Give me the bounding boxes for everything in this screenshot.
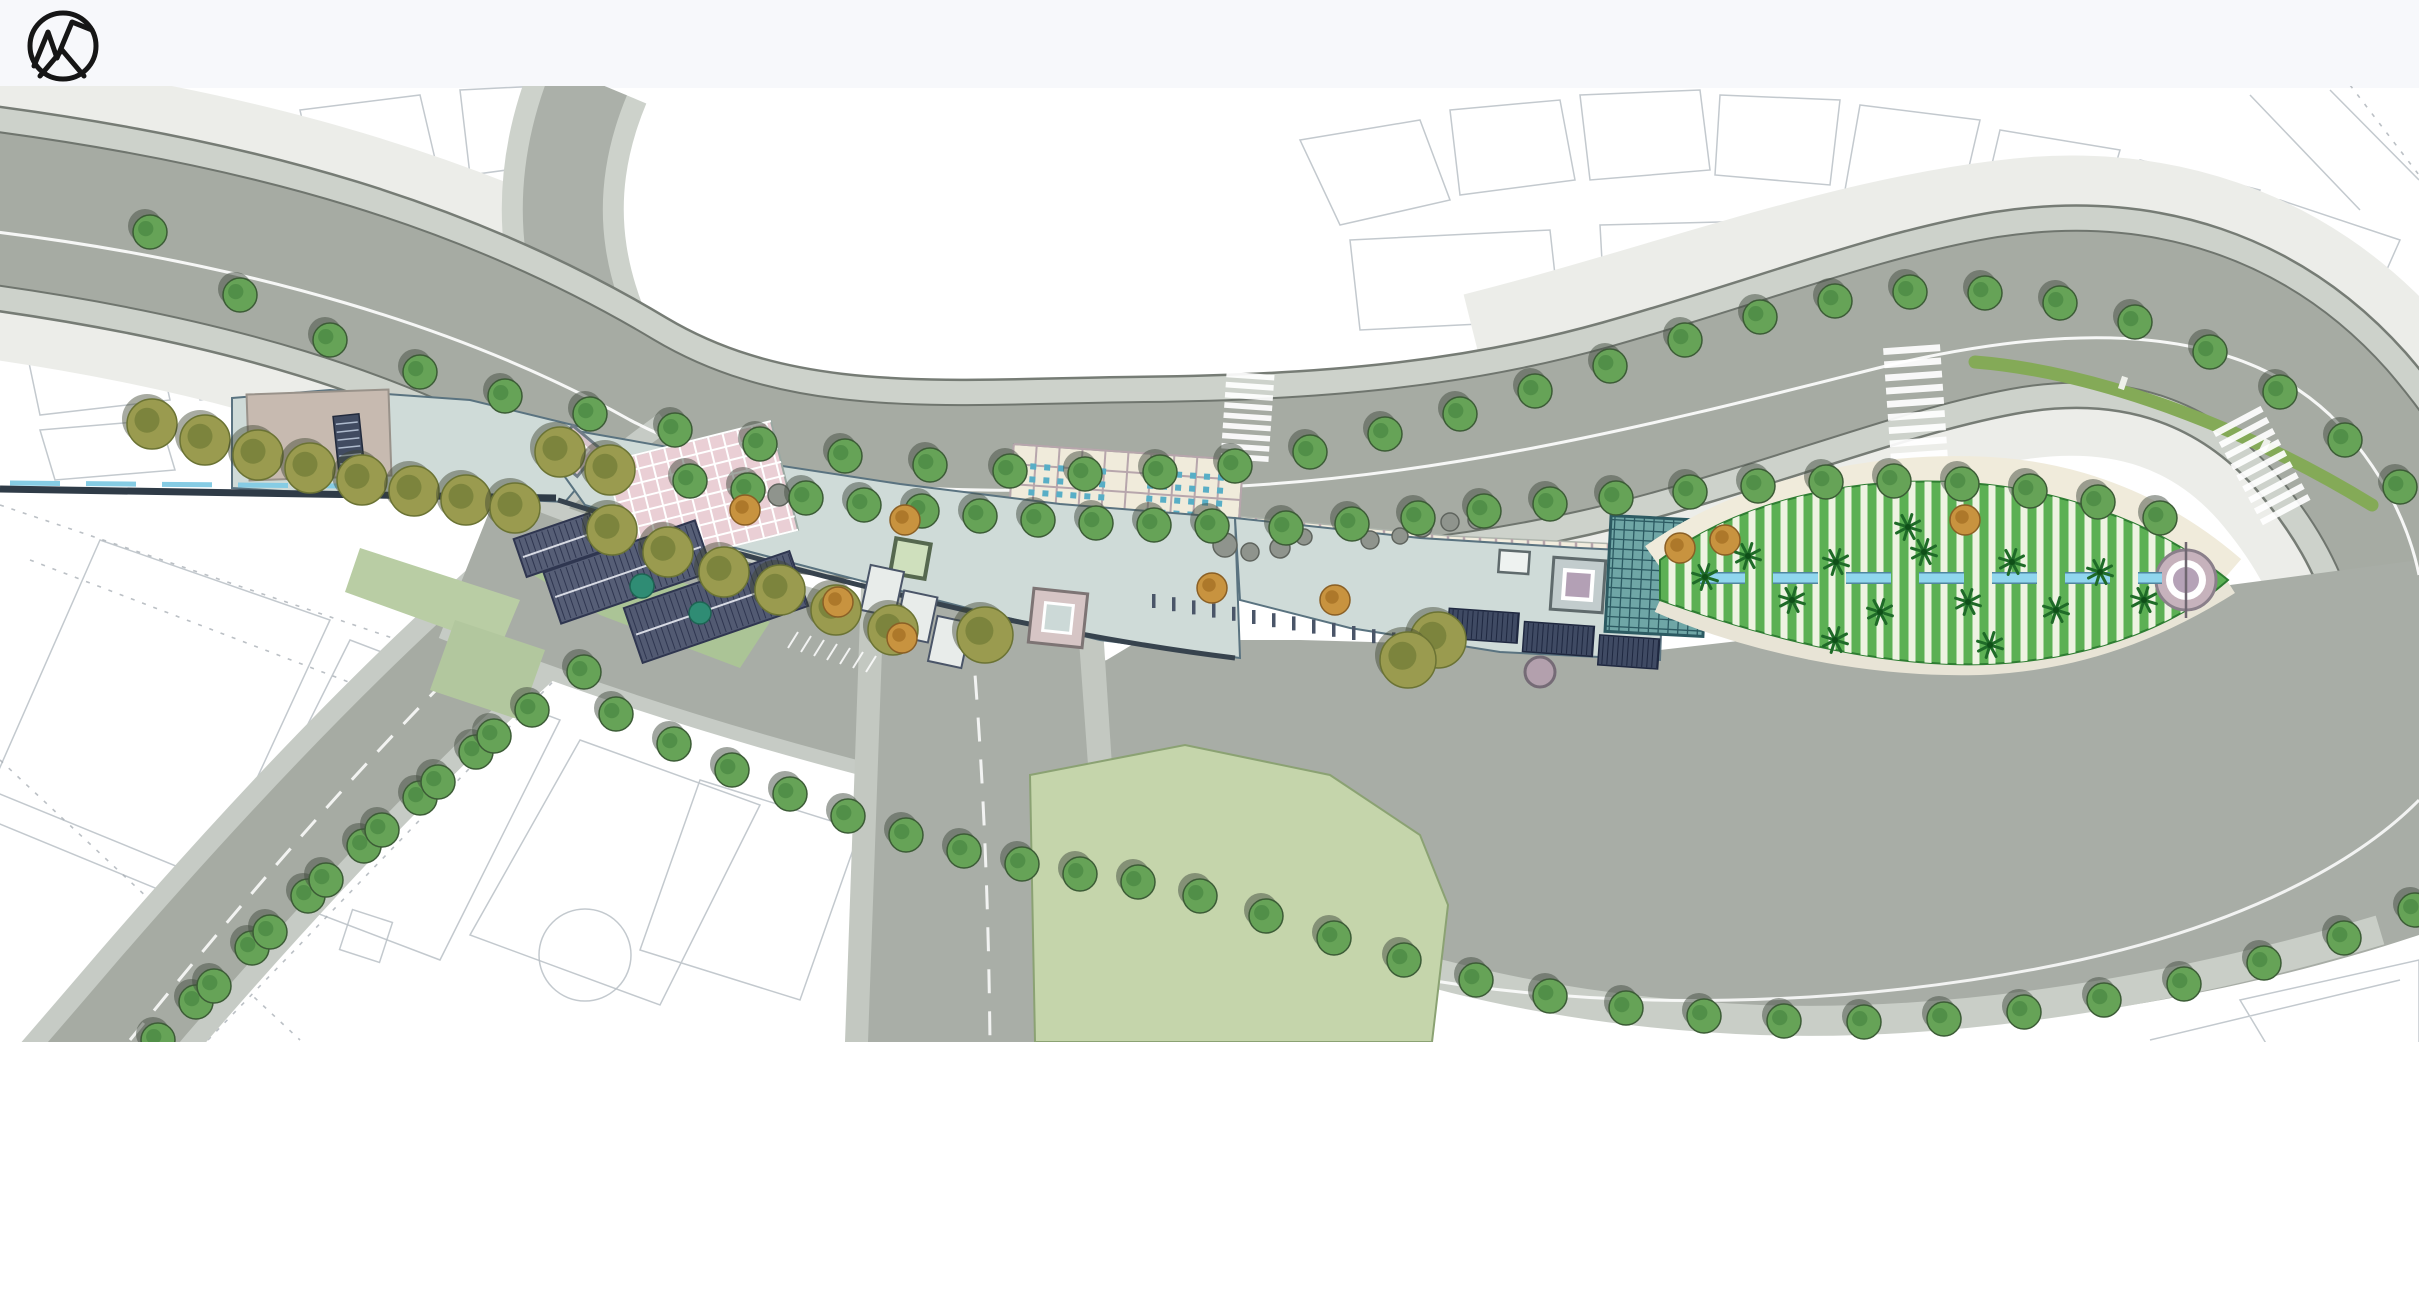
small-culture-plaza (1525, 657, 1555, 687)
fire-pool (1498, 550, 1529, 574)
site-plan-drawing (0, 0, 2419, 1300)
header-band (0, 0, 2419, 88)
bell-terrace (1550, 557, 1606, 613)
masterplan-poster (0, 0, 2419, 1300)
viewing-platform (1028, 588, 1087, 647)
